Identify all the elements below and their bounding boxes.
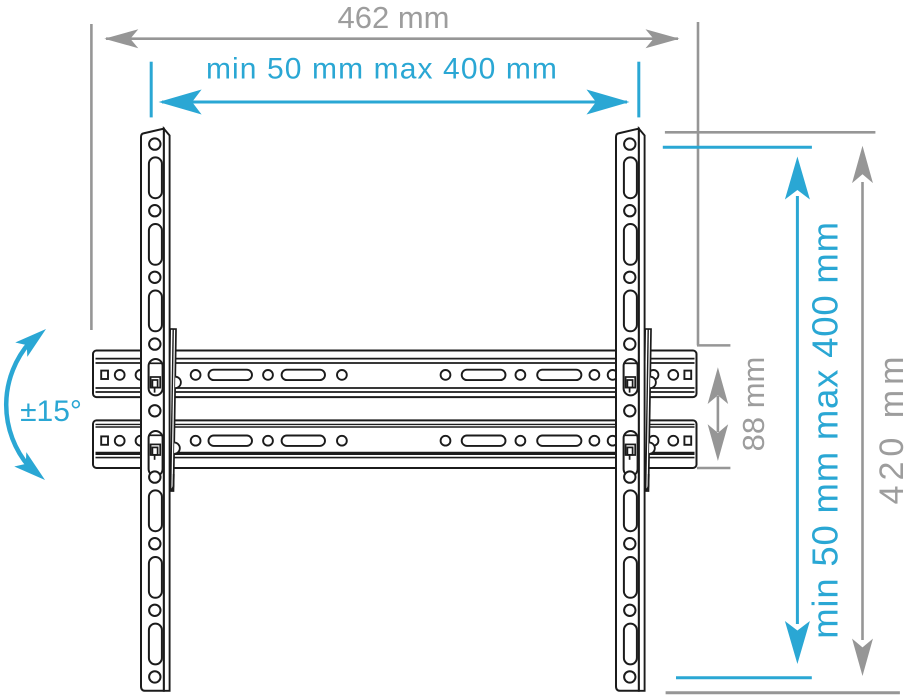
svg-text:88 mm: 88 mm <box>736 357 771 452</box>
svg-text:min 50 mm max 400 mm: min 50 mm max 400 mm <box>805 221 846 639</box>
svg-text:462 mm: 462 mm <box>338 0 450 35</box>
svg-text:±15°: ±15° <box>20 395 82 428</box>
svg-text:min 50 mm max 400 mm: min 50 mm max 400 mm <box>206 52 558 85</box>
svg-text:420 mm: 420 mm <box>873 352 904 505</box>
